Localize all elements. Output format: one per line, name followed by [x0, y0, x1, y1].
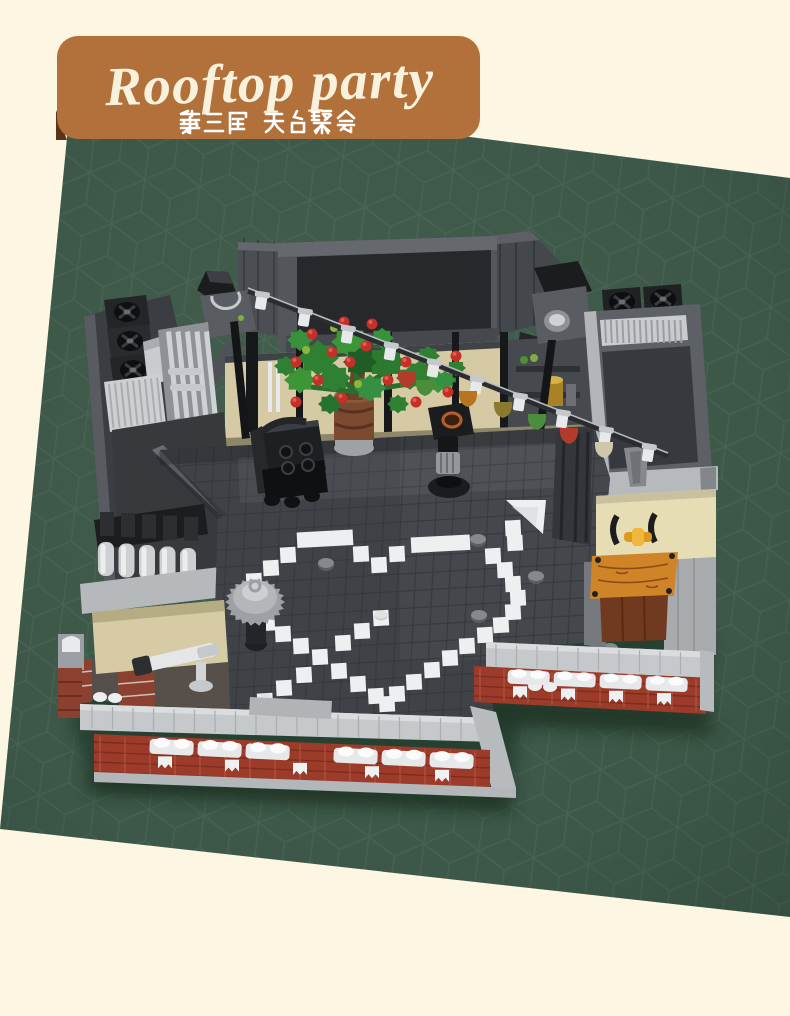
svg-text:Rooftop party: Rooftop party	[103, 48, 435, 118]
